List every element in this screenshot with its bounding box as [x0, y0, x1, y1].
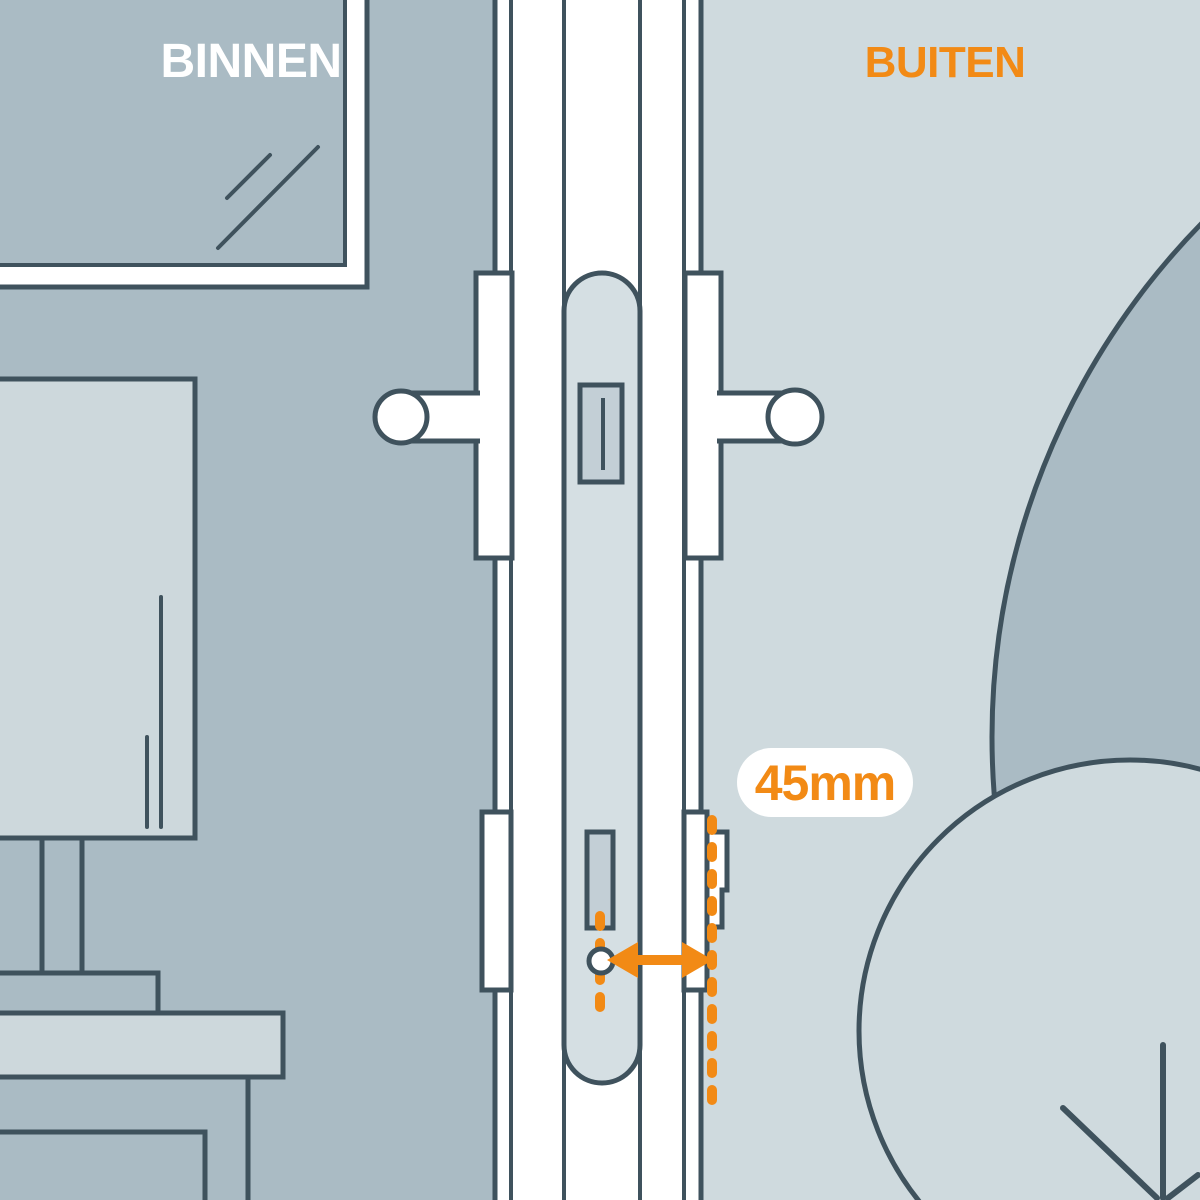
handle-knob — [375, 391, 427, 443]
inside-escutcheon-plate — [476, 273, 512, 558]
monitor-base — [0, 973, 158, 1013]
inside-label: BINNEN — [151, 33, 351, 89]
measurement-value: 45mm — [755, 754, 896, 812]
door-handle-inside — [375, 391, 480, 443]
desk-cabinet — [0, 1132, 205, 1200]
door-handle-outside — [717, 390, 822, 444]
monitor-screen — [0, 379, 195, 838]
monitor-stand — [42, 838, 82, 973]
illustration-canvas: BINNEN BUITEN 45mm — [0, 0, 1200, 1200]
handle-knob — [768, 390, 822, 444]
inside-cylinder-plate — [482, 812, 511, 990]
desk-top — [0, 1013, 283, 1077]
measurement-badge: 45mm — [737, 748, 913, 817]
outside-label: BUITEN — [845, 35, 1045, 90]
outside-escutcheon-plate — [685, 273, 721, 558]
diagram-artwork — [0, 0, 1200, 1200]
